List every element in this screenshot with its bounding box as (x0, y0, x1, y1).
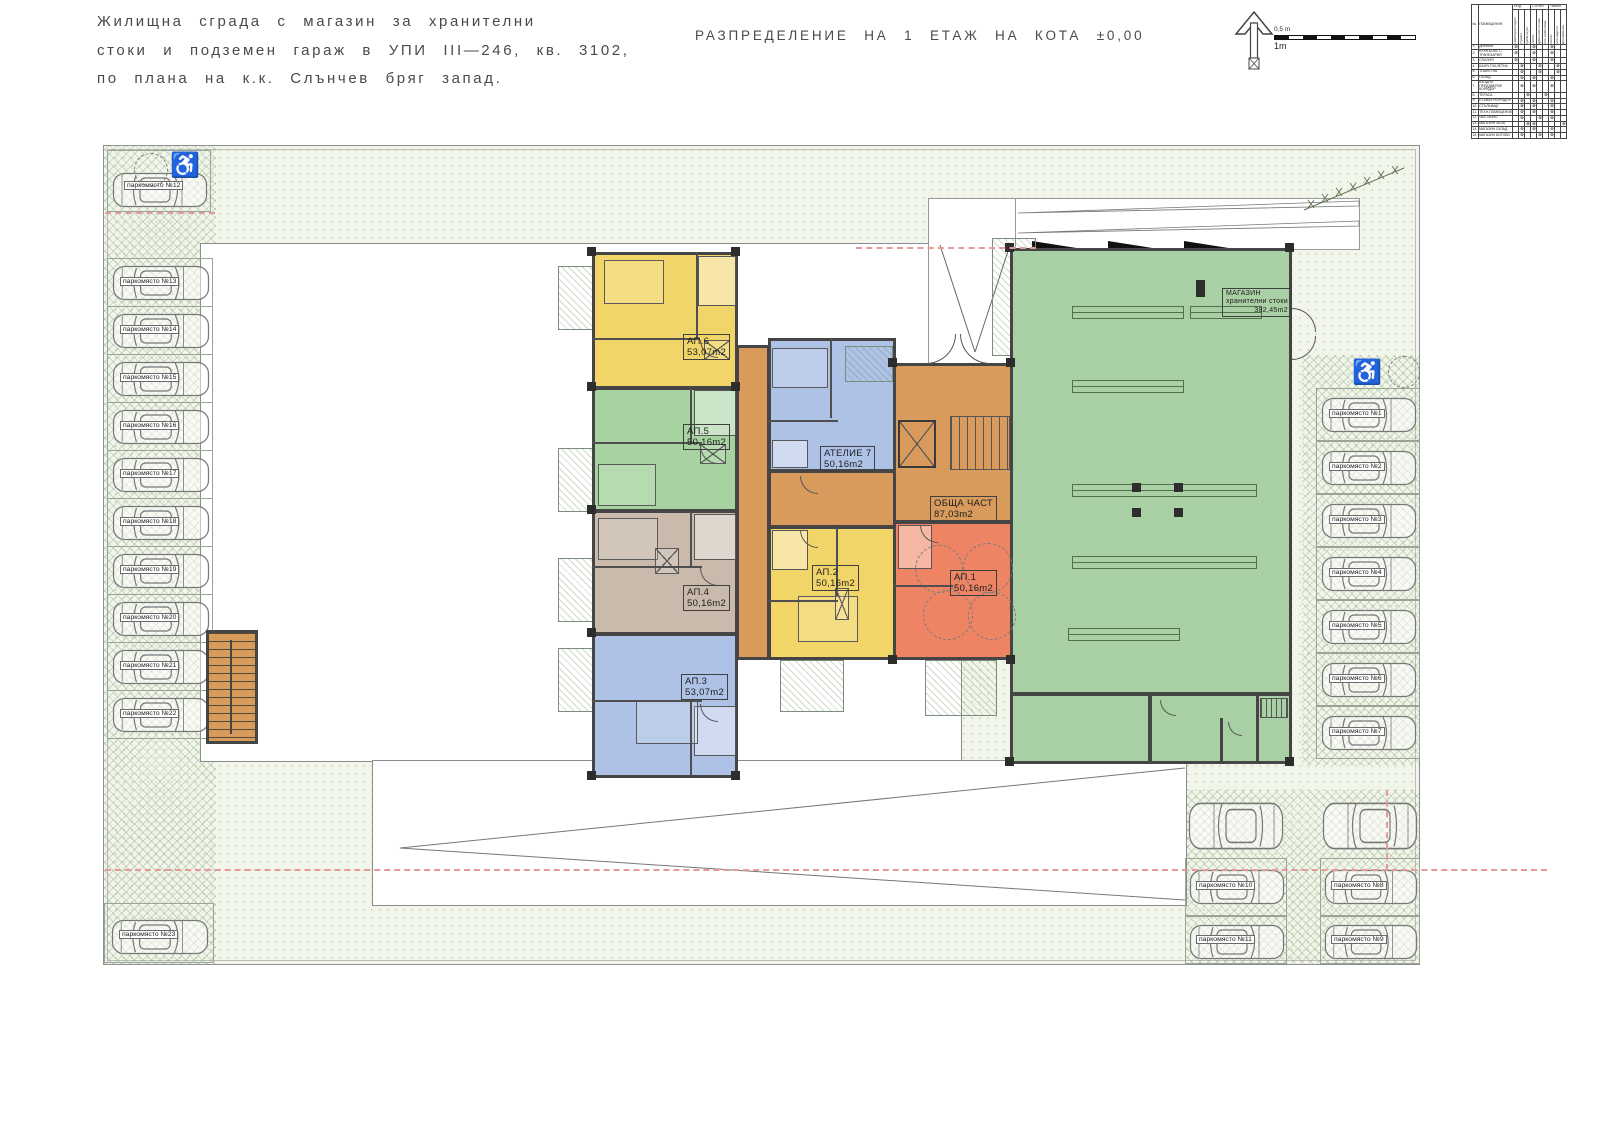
parking-spot: паркомясто №16 (107, 402, 213, 451)
parking-spot: паркомясто №6 (1316, 653, 1420, 706)
parking-spot: паркомясто №21 (107, 642, 213, 691)
common-area-name: ОБЩА ЧАСТ (934, 498, 993, 509)
shop-area: 382,45m2 (1226, 307, 1288, 315)
parking-spot: паркомясто №7 (1316, 706, 1420, 759)
column (587, 628, 596, 637)
staircase-rail (230, 640, 232, 734)
column (1285, 243, 1294, 252)
legend-col-room: ПОМЕЩЕНИЯ (1478, 5, 1513, 45)
terrace-ap5 (558, 448, 594, 512)
legend-row: 15.МАГАЗИН БИТОВО⊗⊗⊗ (1472, 133, 1567, 139)
column (888, 655, 897, 664)
ap5-name: АП.5 (687, 426, 726, 437)
ap6-name: АП.6 (687, 336, 726, 347)
shop-side-double-door (1292, 308, 1320, 360)
shop-name: МАГАЗИН (1226, 290, 1288, 298)
common-area-area: 87,03m2 (934, 509, 993, 520)
ap5-area: 50,16m2 (687, 437, 726, 448)
parking-spot-label: паркомясто №14 (120, 325, 179, 334)
label-shop: МАГАЗИН хранителни стоки 382,45m2 (1222, 288, 1292, 317)
parking-spot-label: паркомясто №2 (1329, 462, 1385, 471)
parking-spot-label: паркомясто №18 (120, 517, 179, 526)
shop-backroom-wall (1220, 718, 1223, 762)
column (587, 771, 596, 780)
entrance-double-door (926, 334, 990, 366)
ap6-bed (604, 260, 664, 304)
parking-spot: паркомясто №22 (107, 690, 213, 739)
ap4-name: АП.4 (687, 587, 726, 598)
site-plan: АП.6 53,07m2 АП.5 50,16m2 АП.4 50,16m2 А… (0, 0, 1600, 1131)
ap2-bed (798, 596, 858, 642)
elevator (898, 420, 936, 468)
terrace-ap6 (558, 266, 594, 330)
parking-spot-label: паркомясто №3 (1329, 515, 1385, 524)
ap3-area: 53,07m2 (685, 687, 724, 698)
label-ap3: АП.3 53,07m2 (681, 674, 728, 700)
ap4-bathroom (694, 514, 736, 560)
common-staircase (950, 416, 1010, 470)
parking-spot-label: паркомясто №5 (1329, 621, 1385, 630)
parking-spot-label: паркомясто №20 (120, 613, 179, 622)
atelier-bed (772, 348, 828, 388)
parking-spot: паркомясто №11 (1185, 916, 1287, 964)
parking-spot: паркомясто №5 (1316, 600, 1420, 653)
shop-column (1132, 483, 1141, 492)
parking-spot: паркомясто №13 (107, 258, 213, 307)
parking-spot: паркомясто №4 (1316, 547, 1420, 600)
corridor-horizontal (768, 470, 896, 528)
shop-shelf (1072, 556, 1257, 569)
truck-icon (1188, 800, 1284, 852)
ap1-area: 50,16m2 (954, 583, 993, 594)
parking-spot-label: паркомясто №13 (120, 277, 179, 286)
shop-hall (1010, 248, 1292, 764)
label-common-area: ОБЩА ЧАСТ 87,03m2 (930, 496, 997, 522)
atelier-area: 50,16m2 (824, 459, 871, 470)
atelier-partition-v (830, 338, 832, 418)
terrace-ap3 (558, 648, 594, 712)
red-dashed-segment-entrance (856, 247, 1036, 249)
scale-bar: 0,5 m 1m (1274, 26, 1419, 52)
parking-spot: паркомясто №1 (1316, 388, 1420, 441)
atelier-name: АТЕЛИЕ 7 (824, 448, 871, 459)
parking-spot: паркомясто №15 (107, 354, 213, 403)
floor-plan-sheet: { "title_block": { "line1": "Жилищна сгр… (0, 0, 1600, 1131)
wheelchair-icon: ♿ (1352, 358, 1382, 387)
column (1005, 757, 1014, 766)
shop-column (1174, 508, 1183, 517)
legend-col-num: № (1472, 5, 1479, 45)
column (731, 247, 740, 256)
truck-icon (1322, 800, 1418, 852)
ap6-partition-v (696, 252, 698, 338)
label-ap5: АП.5 50,16m2 (683, 424, 730, 450)
parking-spot: паркомясто №10 (1185, 858, 1287, 916)
red-dashed-segment-left (105, 212, 215, 214)
terrace-atelier (845, 346, 893, 382)
shop-shelf (1072, 380, 1184, 393)
corridor-vertical (736, 345, 770, 660)
column (587, 505, 596, 514)
ap2-partition-h (768, 600, 838, 602)
ap3-partition-v (690, 702, 692, 776)
outdoor-staircase (206, 630, 258, 744)
legend-subheader: мин.мазилка (1561, 9, 1567, 44)
parking-spot-label: паркомясто №15 (120, 373, 179, 382)
parking-spot: паркомясто №14 (107, 306, 213, 355)
parking-spot: паркомясто №2 (1316, 441, 1420, 494)
parking-spot-label: паркомясто №11 (1196, 935, 1255, 944)
red-dashed-axis-vertical (1386, 790, 1388, 870)
ap4-area: 50,16m2 (687, 598, 726, 609)
shop-backroom-wall (1148, 692, 1152, 762)
parking-spot-label: паркомясто №9 (1331, 935, 1387, 944)
shop-shelf (1072, 484, 1257, 497)
column (888, 358, 897, 367)
shop-subtitle: хранителни стоки (1226, 298, 1288, 306)
shop-shelf (1068, 628, 1180, 641)
ap3-bed (636, 700, 698, 744)
parking-spot-label: паркомясто №7 (1329, 727, 1385, 736)
label-ap1: АП.1 50,16m2 (950, 570, 997, 596)
parking-spot-label: паркомясто №23 (119, 930, 178, 939)
column (731, 382, 740, 391)
column (1006, 655, 1015, 664)
shop-column (1196, 280, 1205, 297)
scale-label-bottom: 1m (1274, 41, 1287, 51)
wheelchair-icon: ♿ (170, 151, 200, 180)
parking-spot: паркомясто №8 (1320, 858, 1420, 916)
ap4-partition-h (592, 566, 702, 568)
parking-spot: паркомясто №3 (1316, 494, 1420, 547)
parking-spot: ♿ паркомясто №12 (107, 150, 211, 212)
parking-spot-label: паркомясто №19 (120, 565, 179, 574)
column (1285, 757, 1294, 766)
parking-spot: паркомясто №17 (107, 450, 213, 499)
parking-spot-label: паркомясто №6 (1329, 674, 1385, 683)
shop-column (1132, 508, 1141, 517)
label-ap2: АП.2 50,16m2 (812, 565, 859, 591)
ap2-name: АП.2 (816, 567, 855, 578)
parking-spot-label: паркомясто №21 (120, 661, 179, 670)
scale-label-top: 0,5 m (1274, 26, 1290, 33)
tree-icon (134, 153, 168, 187)
column (1006, 358, 1015, 367)
red-dashed-axis-main (105, 869, 1547, 871)
terrace-ap4 (558, 558, 594, 622)
legend-row: 7.ВХОДНО ПРЕДДВЕРИЕ КОРИДОР⊗⊗⊗ (1472, 81, 1567, 93)
garage-ramp-arrow (372, 760, 1187, 906)
parking-spot: паркомясто №18 (107, 498, 213, 547)
terrace-ap1 (925, 660, 997, 716)
ap2-area: 50,16m2 (816, 578, 855, 589)
parking-spot-label: паркомясто №8 (1331, 881, 1387, 890)
parking-spot-label: паркомясто №4 (1329, 568, 1385, 577)
shop-back-stair (1260, 698, 1288, 718)
parking-spot: паркомясто №23 (104, 903, 214, 963)
ap4-partition-v (690, 510, 692, 566)
label-atelier: АТЕЛИЕ 7 50,16m2 (820, 446, 875, 472)
north-arrow-icon (1234, 10, 1274, 72)
parking-spot-label: паркомясто №16 (120, 421, 179, 430)
parking-spot: паркомясто №9 (1320, 916, 1420, 964)
scale-bar-graphic (1274, 35, 1416, 40)
label-ap6: АП.6 53,07m2 (683, 334, 730, 360)
ap4-closet (655, 548, 679, 574)
shop-shelf (1072, 306, 1184, 319)
ap6-bathroom (698, 256, 736, 306)
parking-spot-label: паркомясто №22 (120, 709, 179, 718)
trees-icon (1300, 158, 1410, 216)
finishes-legend-table: №ПОМЕЩЕНИЯПОДСТЕНИТАВАНламиниран паркетт… (1471, 4, 1567, 139)
ap6-area: 53,07m2 (687, 347, 726, 358)
ap4-bed (598, 518, 658, 560)
shop-column (1174, 483, 1183, 492)
tree-icon (1388, 356, 1420, 388)
parking-spot-label: паркомясто №17 (120, 469, 179, 478)
ap3-name: АП.3 (685, 676, 724, 687)
ap1-name: АП.1 (954, 572, 993, 583)
parking-spot-label: паркомясто №1 (1329, 409, 1385, 418)
ap1-round-furniture (968, 592, 1016, 640)
ap1-round-furniture (923, 590, 973, 640)
column (587, 382, 596, 391)
column (731, 771, 740, 780)
parking-spot: паркомясто №19 (107, 546, 213, 595)
ap5-bed (598, 464, 656, 506)
column (587, 247, 596, 256)
atelier-partition-h (768, 420, 838, 422)
shop-backroom-wall (1256, 692, 1259, 762)
parking-spot: паркомясто №20 (107, 594, 213, 643)
terrace-ap2 (780, 660, 844, 712)
parking-spot-label: паркомясто №10 (1196, 881, 1255, 890)
label-ap4: АП.4 50,16m2 (683, 585, 730, 611)
atelier-bathroom (772, 440, 808, 468)
